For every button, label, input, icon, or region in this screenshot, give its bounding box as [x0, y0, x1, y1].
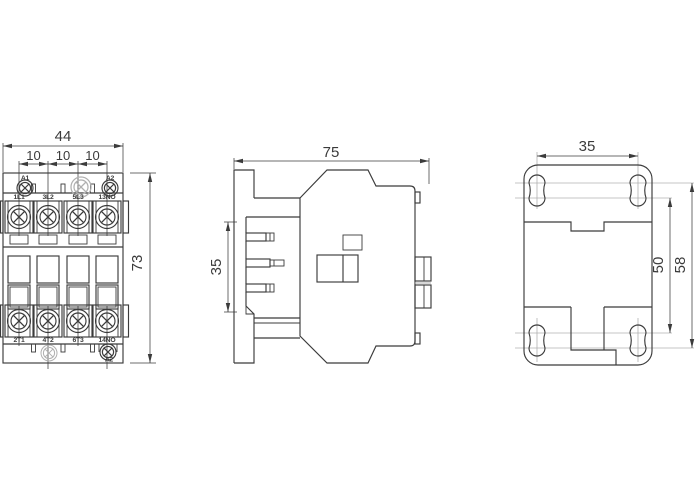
front-terminal-row-bottom: [5, 305, 121, 337]
dim-side-depth-text: 75: [323, 144, 340, 161]
body-window-small: [343, 235, 362, 250]
rear-protrusion: [415, 285, 431, 308]
front-coil-terminals-bottom: A2: [41, 344, 117, 364]
rear-clip: [415, 333, 420, 344]
dim-pitch-text-2: 10: [56, 148, 70, 163]
arrowhead: [690, 183, 694, 192]
dim-pitch-text-3: 10: [85, 148, 99, 163]
rear-dim-hole-pitch-outer: 58: [672, 183, 694, 348]
rear-plate-outline: [524, 165, 652, 365]
rear-protrusion: [415, 257, 431, 281]
arrowhead: [114, 144, 123, 148]
arrowhead: [420, 159, 429, 163]
center-screw-gray: [41, 345, 57, 361]
dim-rear-pitch-x-text: 35: [579, 138, 596, 155]
arrowhead: [69, 162, 78, 166]
side-body: [300, 170, 431, 363]
terminal-screw: [8, 206, 31, 229]
rear-dim-hole-pitch-x: 35: [537, 138, 638, 158]
terminal-lug: [246, 233, 266, 241]
dim-rear-pitch-inner-text: 50: [650, 257, 667, 274]
terminal-window: [39, 235, 57, 244]
terminal-label-3l2: 3L2: [42, 194, 54, 201]
terminal-label-2t1: 2T1: [13, 337, 25, 344]
arrowhead: [234, 159, 243, 163]
front-terminal-row-top: [5, 201, 121, 244]
band-top-edge: [524, 222, 652, 231]
rear-clip: [415, 192, 420, 203]
rear-plate: [524, 165, 652, 365]
arrowhead: [629, 154, 638, 158]
terminal-label-a2-bottom: A2: [105, 357, 114, 364]
opening-inner: [98, 287, 116, 307]
arrowhead: [668, 198, 672, 207]
arrowhead: [537, 154, 546, 158]
terminal-window: [98, 235, 116, 244]
arrowhead: [226, 303, 230, 312]
arrowhead: [148, 354, 152, 363]
dim-rear-pitch-outer-text: 58: [672, 257, 689, 274]
dim-pitch-text-1: 10: [26, 148, 40, 163]
dim-front-width-text: 44: [55, 128, 72, 145]
terminal-screw: [96, 206, 119, 229]
terminal-label-13no: 13NO: [99, 194, 116, 201]
opening-inner: [10, 287, 28, 307]
arrowhead: [148, 173, 152, 182]
side-view: 75 35: [208, 144, 431, 363]
drawing-canvas: 44 10 10 10 73: [0, 0, 700, 500]
terminal-label-5l3: 5L3: [72, 194, 84, 201]
terminal-lug: [246, 259, 270, 267]
dim-front-height-text: 73: [129, 255, 146, 272]
terminal-label-1l1: 1L1: [13, 194, 25, 201]
opening: [67, 256, 89, 283]
rear-dim-hole-pitch-inner: 50: [650, 198, 672, 333]
terminal-label-6t3: 6T3: [72, 337, 84, 344]
front-middle-openings: [8, 256, 118, 309]
arrowhead: [3, 144, 12, 148]
technical-drawing: 44 10 10 10 73: [0, 0, 700, 500]
arrowhead: [226, 222, 230, 231]
terminal-screw: [67, 310, 90, 333]
opening-inner: [39, 287, 57, 307]
opening: [96, 256, 118, 283]
notch: [91, 344, 95, 352]
terminal-lug: [246, 284, 266, 292]
terminal-screw: [37, 206, 60, 229]
arrowhead: [690, 339, 694, 348]
notch: [61, 184, 65, 193]
terminal-screw: [37, 310, 60, 333]
side-dim-depth: 75: [234, 144, 429, 184]
terminal-screw: [8, 310, 31, 333]
arrowhead: [668, 324, 672, 333]
side-tab: [123, 305, 129, 337]
front-dim-pitch: 10 10 10: [19, 148, 107, 166]
side-tab: [1, 201, 4, 233]
opening-inner: [69, 287, 87, 307]
front-view: 44 10 10 10 73: [1, 128, 157, 369]
front-dim-height: 73: [129, 173, 156, 363]
front-terminal-labels-bottom: 2T1 4T2 6T3 14NO: [13, 337, 115, 344]
terminal-window: [10, 235, 28, 244]
side-tab: [123, 201, 129, 233]
din-rail-tab: [571, 307, 616, 365]
opening: [37, 256, 59, 283]
lug-cap: [270, 260, 284, 266]
dim-side-rail-text: 35: [208, 259, 225, 276]
side-dim-rail: 35: [208, 222, 237, 312]
terminal-label-14no: 14NO: [99, 337, 116, 344]
rear-view: 35 50 58: [515, 138, 694, 365]
terminal-label-4t2: 4T2: [42, 337, 54, 344]
side-tab: [1, 305, 4, 337]
terminal-window: [69, 235, 87, 244]
notch: [32, 344, 36, 352]
terminal-screw: [96, 310, 119, 333]
side-mounting-plate: [234, 170, 300, 363]
terminal-screw: [67, 206, 90, 229]
body-window-large: [317, 255, 358, 282]
opening: [8, 256, 30, 283]
notch: [61, 344, 65, 352]
